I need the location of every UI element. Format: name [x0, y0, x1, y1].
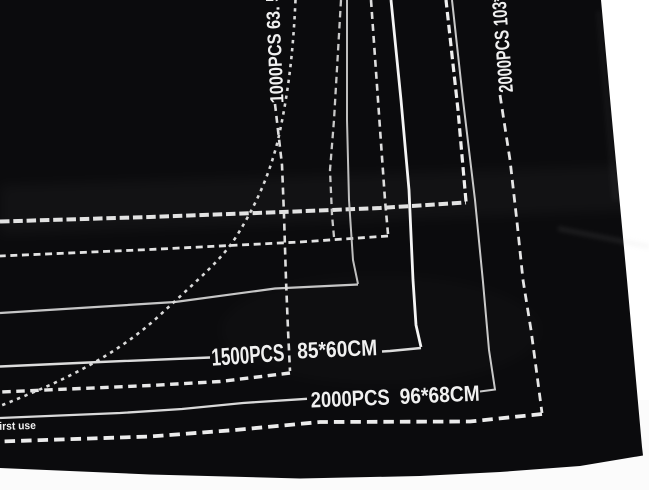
svg-text:85*60CM: 85*60CM	[297, 335, 378, 363]
svg-text:2000PCS: 2000PCS	[310, 384, 390, 412]
svg-text:1500PCS: 1500PCS	[211, 340, 286, 372]
svg-text:first use: first use	[0, 420, 36, 433]
svg-text:1000PCS 63. 5*4: 1000PCS 63. 5*4	[262, 0, 288, 104]
svg-text:96*68CM: 96*68CM	[399, 381, 480, 409]
